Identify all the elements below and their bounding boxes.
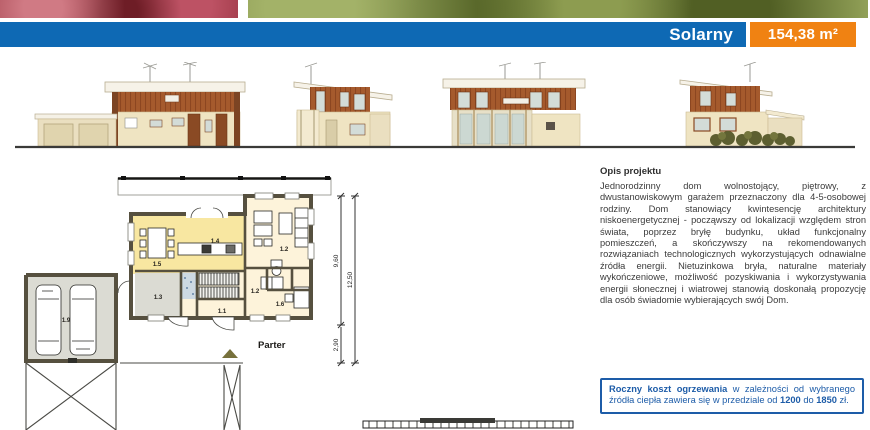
title-bar: Solarny xyxy=(0,22,746,47)
floor-label: Parter xyxy=(258,340,286,351)
description-body: Jednorodzinny dom wolnostojący, piętrowy… xyxy=(600,181,866,306)
heating-cost-text-2: do xyxy=(801,395,817,405)
room-label-corridor: 1.2 xyxy=(251,289,260,295)
room-label-kitchen: 1.4 xyxy=(211,239,220,245)
heating-cost-max: 1850 xyxy=(816,395,837,405)
room-label-room-a: 1.2 xyxy=(280,247,289,253)
terrace xyxy=(118,176,331,195)
dim-depth-porch: 2,90 xyxy=(333,338,340,351)
room-label-garage: 1.9 xyxy=(62,318,71,324)
floor-plan-parter: 9,60 2,90 12,50 1.5 1.4 1.2 1.3 1.2 1.6 … xyxy=(0,165,600,430)
room-label-dining: 1.5 xyxy=(153,262,162,268)
dim-depth-total: 12,50 xyxy=(347,271,354,288)
entrance-arrow-icon xyxy=(222,349,238,358)
room-label-hall: 1.1 xyxy=(218,309,227,315)
heating-cost-min: 1200 xyxy=(780,395,801,405)
elevation-side-right xyxy=(680,62,804,146)
elevation-drawings xyxy=(0,62,870,152)
grass-photo-strip xyxy=(248,0,868,18)
area-badge: 154,38 m² xyxy=(750,22,856,47)
heating-cost-lead: Roczny koszt ogrzewania xyxy=(609,384,727,394)
project-description: Opis projektu Jednorodzinny dom wolnosto… xyxy=(600,166,866,306)
area-value: 154,38 m² xyxy=(768,26,838,43)
elevation-front-main xyxy=(443,62,585,146)
room-label-utility: 1.3 xyxy=(154,295,163,301)
room-label-room-c: 1.6 xyxy=(276,302,285,308)
upper-floor-fragment xyxy=(363,418,573,428)
elevation-side-left xyxy=(294,63,392,146)
dim-depth-main: 9,60 xyxy=(333,254,340,267)
elevation-front-garage xyxy=(35,62,245,146)
driveway-lines xyxy=(26,363,243,430)
heating-cost-text-3: zł. xyxy=(837,395,849,405)
heating-cost-box: Roczny koszt ogrzewania w zależności od … xyxy=(600,378,864,414)
flower-photo-strip xyxy=(0,0,238,18)
project-title: Solarny xyxy=(669,25,746,45)
description-heading: Opis projektu xyxy=(600,166,866,177)
